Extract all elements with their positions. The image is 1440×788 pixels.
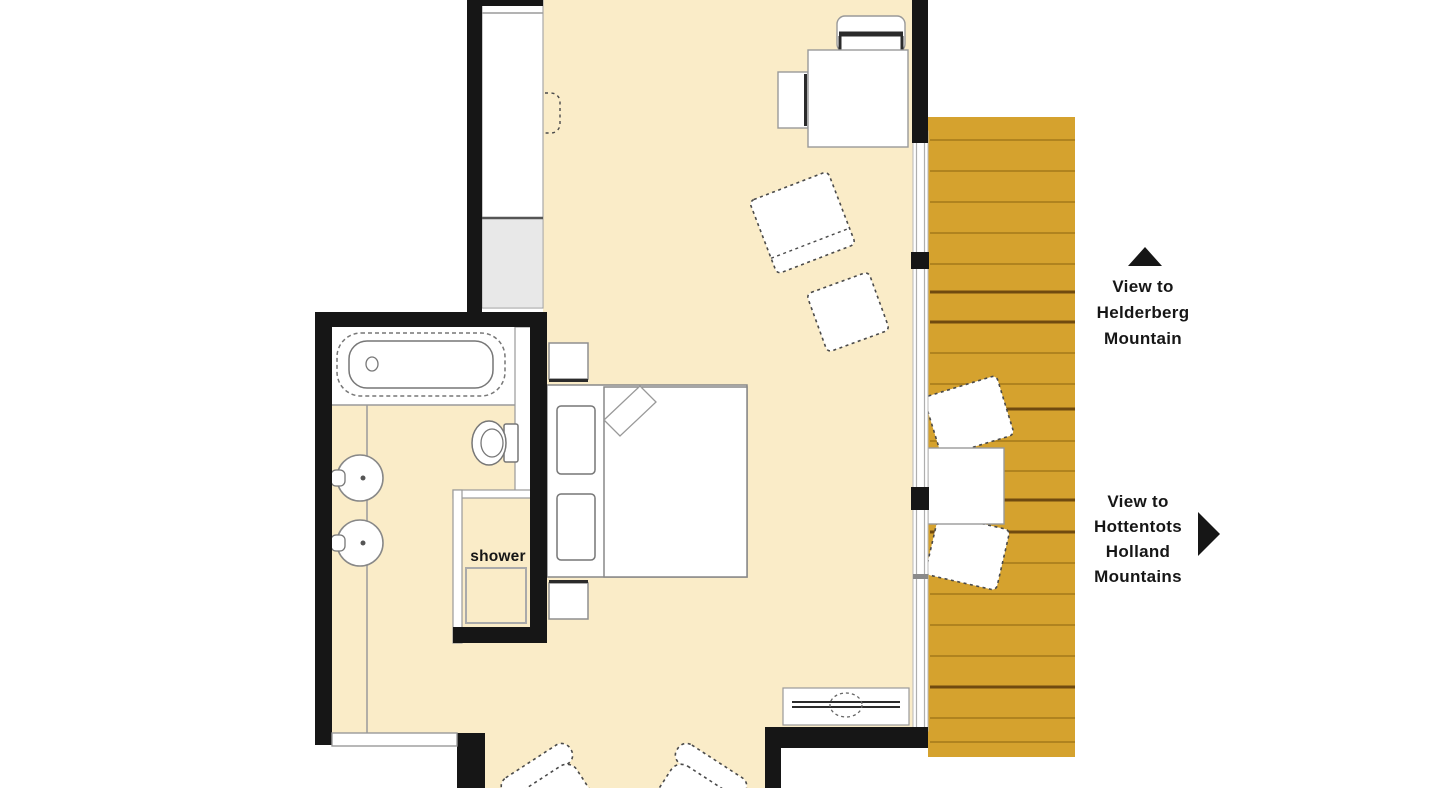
- sink-tap-icon: [331, 470, 345, 486]
- deck-table: [928, 448, 1004, 524]
- toilet: [472, 421, 518, 465]
- wall-south-east-post: [765, 727, 781, 788]
- glass-wall-mullion: [911, 252, 929, 269]
- view-label-line: Helderberg: [1097, 303, 1190, 322]
- glass-wall-mullion: [911, 487, 929, 510]
- wall-bathroom-west: [315, 312, 332, 745]
- wall-bathroom-north: [315, 312, 547, 327]
- view-label-line: Mountain: [1104, 329, 1182, 348]
- floorplan-canvas: shower: [0, 0, 1440, 788]
- wardrobe-shelf: [483, 219, 542, 307]
- view-label-line: View to: [1112, 277, 1173, 296]
- glass-door-catch: [913, 574, 928, 579]
- pillow: [557, 406, 595, 474]
- triangle-right-icon: [1198, 512, 1220, 556]
- pillow: [557, 494, 595, 560]
- desk-side-unit: [778, 72, 808, 128]
- wall-entry-post: [457, 733, 485, 788]
- bed-group: [547, 343, 747, 619]
- wall-bathroom-east: [530, 312, 547, 643]
- wall-east-upper: [912, 0, 928, 143]
- view-label-hottentots: View to Hottentots Holland Mountains: [1094, 492, 1220, 586]
- shower-label: shower: [470, 548, 525, 565]
- plumbing-duct: [515, 327, 531, 492]
- sink-tap-icon: [331, 535, 345, 551]
- fireplace-console: [783, 688, 909, 725]
- bathtub: [337, 333, 505, 396]
- nightstand-north: [549, 343, 588, 379]
- bathroom-window-wall: [332, 733, 457, 746]
- wall-south-east: [765, 727, 928, 748]
- desk: [808, 50, 908, 147]
- triangle-up-icon: [1128, 247, 1162, 266]
- view-label-line: Mountains: [1094, 567, 1182, 586]
- view-label-line: Hottentots: [1094, 517, 1182, 536]
- view-label-helderberg: View to Helderberg Mountain: [1097, 247, 1190, 348]
- wall-shower-south: [453, 627, 547, 643]
- nightstand-south: [549, 583, 588, 619]
- wall-west-upper: [467, 0, 482, 314]
- view-label-line: Holland: [1106, 542, 1170, 561]
- shower-wall-left: [453, 490, 462, 643]
- view-label-line: View to: [1107, 492, 1168, 511]
- glass-wall: [913, 131, 928, 731]
- shower-wall-top: [453, 490, 533, 498]
